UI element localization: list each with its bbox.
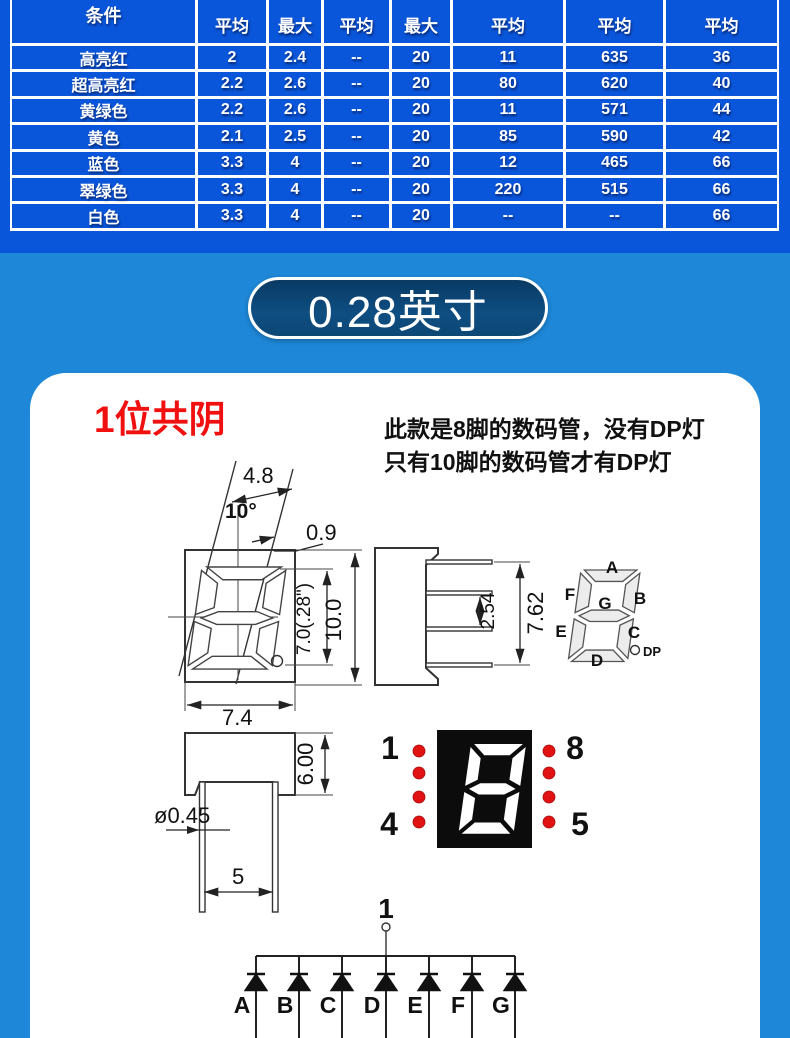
- spec-table-section: 条件 平均 最大 平均 最大 平均 平均 平均 高亮红 2 2.4 -- 20 …: [0, 0, 790, 253]
- table-cell: 80: [453, 72, 563, 95]
- table-header: 平均: [324, 0, 389, 43]
- table-cell: 20: [392, 46, 450, 69]
- table-cell: 66: [666, 204, 777, 227]
- segment-label-g: G: [598, 594, 611, 613]
- pin-dot: [543, 816, 555, 828]
- dim-0-9: 0.9: [306, 520, 337, 545]
- diode-label-d: D: [364, 992, 381, 1018]
- table-cell: --: [324, 99, 389, 122]
- table-cell: --: [453, 204, 563, 227]
- pin-dot: [413, 745, 425, 757]
- dim-angle: 10°: [225, 500, 257, 523]
- dim-7-4: 7.4: [222, 705, 253, 730]
- pin-number-4: 4: [380, 806, 398, 842]
- table-cell: 3.3: [198, 152, 266, 175]
- table-cell: 12: [453, 152, 563, 175]
- table-cell: 20: [392, 178, 450, 201]
- circuit-diagram: 1: [234, 893, 525, 1038]
- spec-table: 条件 平均 最大 平均 最大 平均 平均 平均 高亮红 2 2.4 -- 20 …: [10, 0, 779, 231]
- table-cell: 220: [453, 178, 563, 201]
- table-cell: 635: [566, 46, 663, 69]
- pin-dot: [543, 767, 555, 779]
- common-pin-label: 1: [378, 893, 394, 924]
- table-cell: 11: [453, 46, 563, 69]
- table-cell: 20: [392, 99, 450, 122]
- row-label: 黄绿色: [12, 99, 195, 122]
- table-header: 平均: [198, 0, 266, 43]
- segment-label-c: C: [628, 623, 640, 642]
- table-cell: 465: [566, 152, 663, 175]
- pin-dot: [413, 791, 425, 803]
- table-cell: 620: [566, 72, 663, 95]
- size-banner: 0.28英寸: [248, 277, 548, 339]
- diode-label-c: C: [320, 992, 337, 1018]
- table-cell: 44: [666, 99, 777, 122]
- table-cell: 2.2: [198, 72, 266, 95]
- segment-label-e: E: [555, 622, 566, 641]
- table-cell: 590: [566, 125, 663, 148]
- table-cell: 2.1: [198, 125, 266, 148]
- segment-label-b: B: [634, 589, 646, 608]
- dim-2-54: 2.54: [478, 592, 499, 629]
- table-cell: 2.6: [269, 99, 321, 122]
- table-cell: 20: [392, 152, 450, 175]
- dim-6-00: 6.00: [293, 743, 318, 786]
- technical-drawing: 4.8 10° 0.9 7.0(.28") 10.0: [30, 373, 760, 1038]
- pin-number-8: 8: [566, 730, 584, 766]
- row-label: 翠绿色: [12, 178, 195, 201]
- row-label: 高亮红: [12, 46, 195, 69]
- product-page: 条件 平均 最大 平均 最大 平均 平均 平均 高亮红 2 2.4 -- 20 …: [0, 0, 790, 1038]
- row-label: 黄色: [12, 125, 195, 148]
- table-cell: 20: [392, 125, 450, 148]
- table-cell: --: [566, 204, 663, 227]
- table-cell: 4: [269, 178, 321, 201]
- table-cell: 66: [666, 152, 777, 175]
- front-view: 4.8 10° 0.9 7.0(.28") 10.0: [168, 461, 362, 730]
- banner-section: 0.28英寸: [0, 253, 790, 373]
- dim-4-8: 4.8: [243, 463, 274, 488]
- size-banner-label: 0.28英寸: [308, 276, 488, 340]
- table-cell: 4: [269, 204, 321, 227]
- segment-label-d: D: [591, 651, 603, 670]
- segment-label-f: F: [565, 585, 575, 604]
- pin-dot: [543, 791, 555, 803]
- table-header-condition: 条件: [12, 0, 195, 43]
- table-cell: --: [324, 46, 389, 69]
- pin-dot: [413, 816, 425, 828]
- table-cell: --: [324, 204, 389, 227]
- table-cell: 571: [566, 99, 663, 122]
- table-header: 最大: [269, 0, 321, 43]
- table-cell: 11: [453, 99, 563, 122]
- diode-label-f: F: [451, 992, 465, 1018]
- table-cell: 3.3: [198, 204, 266, 227]
- side-view: 2.54 7.62: [375, 548, 548, 685]
- table-cell: 66: [666, 178, 777, 201]
- table-cell: --: [324, 178, 389, 201]
- drawing-section: 1位共阴 此款是8脚的数码管，没有DP灯 只有10脚的数码管才有DP灯: [0, 373, 790, 1038]
- row-label: 白色: [12, 204, 195, 227]
- display-image: 1 8 4 5: [380, 730, 589, 848]
- table-cell: 85: [453, 125, 563, 148]
- table-cell: 515: [566, 178, 663, 201]
- segment-label-dp: DP: [643, 644, 661, 659]
- diode-symbols: [246, 974, 525, 990]
- dim-pin-spacing: 5: [232, 864, 244, 889]
- table-cell: 42: [666, 125, 777, 148]
- table-header: 平均: [566, 0, 663, 43]
- table-cell: 40: [666, 72, 777, 95]
- row-label: 超高亮红: [12, 72, 195, 95]
- table-cell: 3.3: [198, 178, 266, 201]
- pin-number-5: 5: [571, 806, 589, 842]
- table-cell: 36: [666, 46, 777, 69]
- pin-dot: [543, 745, 555, 757]
- pin-number-1: 1: [381, 730, 399, 766]
- table-cell: --: [324, 152, 389, 175]
- diode-label-g: G: [492, 992, 510, 1018]
- table-cell: 2.5: [269, 125, 321, 148]
- dim-7-0: 7.0(.28"): [294, 583, 315, 655]
- bottom-view: 6.00 ø0.45 5: [154, 733, 333, 912]
- table-header: 平均: [666, 0, 777, 43]
- table-cell: 20: [392, 72, 450, 95]
- table-header: 平均: [453, 0, 563, 43]
- diode-label-e: E: [407, 992, 422, 1018]
- table-cell: --: [324, 125, 389, 148]
- table-cell: 2.6: [269, 72, 321, 95]
- segment-diagram: A F B G E C D DP: [555, 558, 661, 670]
- dim-10-0: 10.0: [321, 599, 346, 642]
- dim-7-62: 7.62: [523, 592, 548, 635]
- table-header: 最大: [392, 0, 450, 43]
- table-cell: --: [324, 72, 389, 95]
- pin-dot: [413, 767, 425, 779]
- row-label: 蓝色: [12, 152, 195, 175]
- product-card: 1位共阴 此款是8脚的数码管，没有DP灯 只有10脚的数码管才有DP灯: [30, 373, 760, 1038]
- diode-label-b: B: [277, 992, 294, 1018]
- table-cell: 2: [198, 46, 266, 69]
- table-cell: 2.4: [269, 46, 321, 69]
- table-cell: 4: [269, 152, 321, 175]
- segment-label-a: A: [606, 558, 618, 577]
- diode-label-a: A: [234, 992, 251, 1018]
- table-cell: 20: [392, 204, 450, 227]
- dim-pin-diameter: ø0.45: [154, 803, 210, 828]
- table-cell: 2.2: [198, 99, 266, 122]
